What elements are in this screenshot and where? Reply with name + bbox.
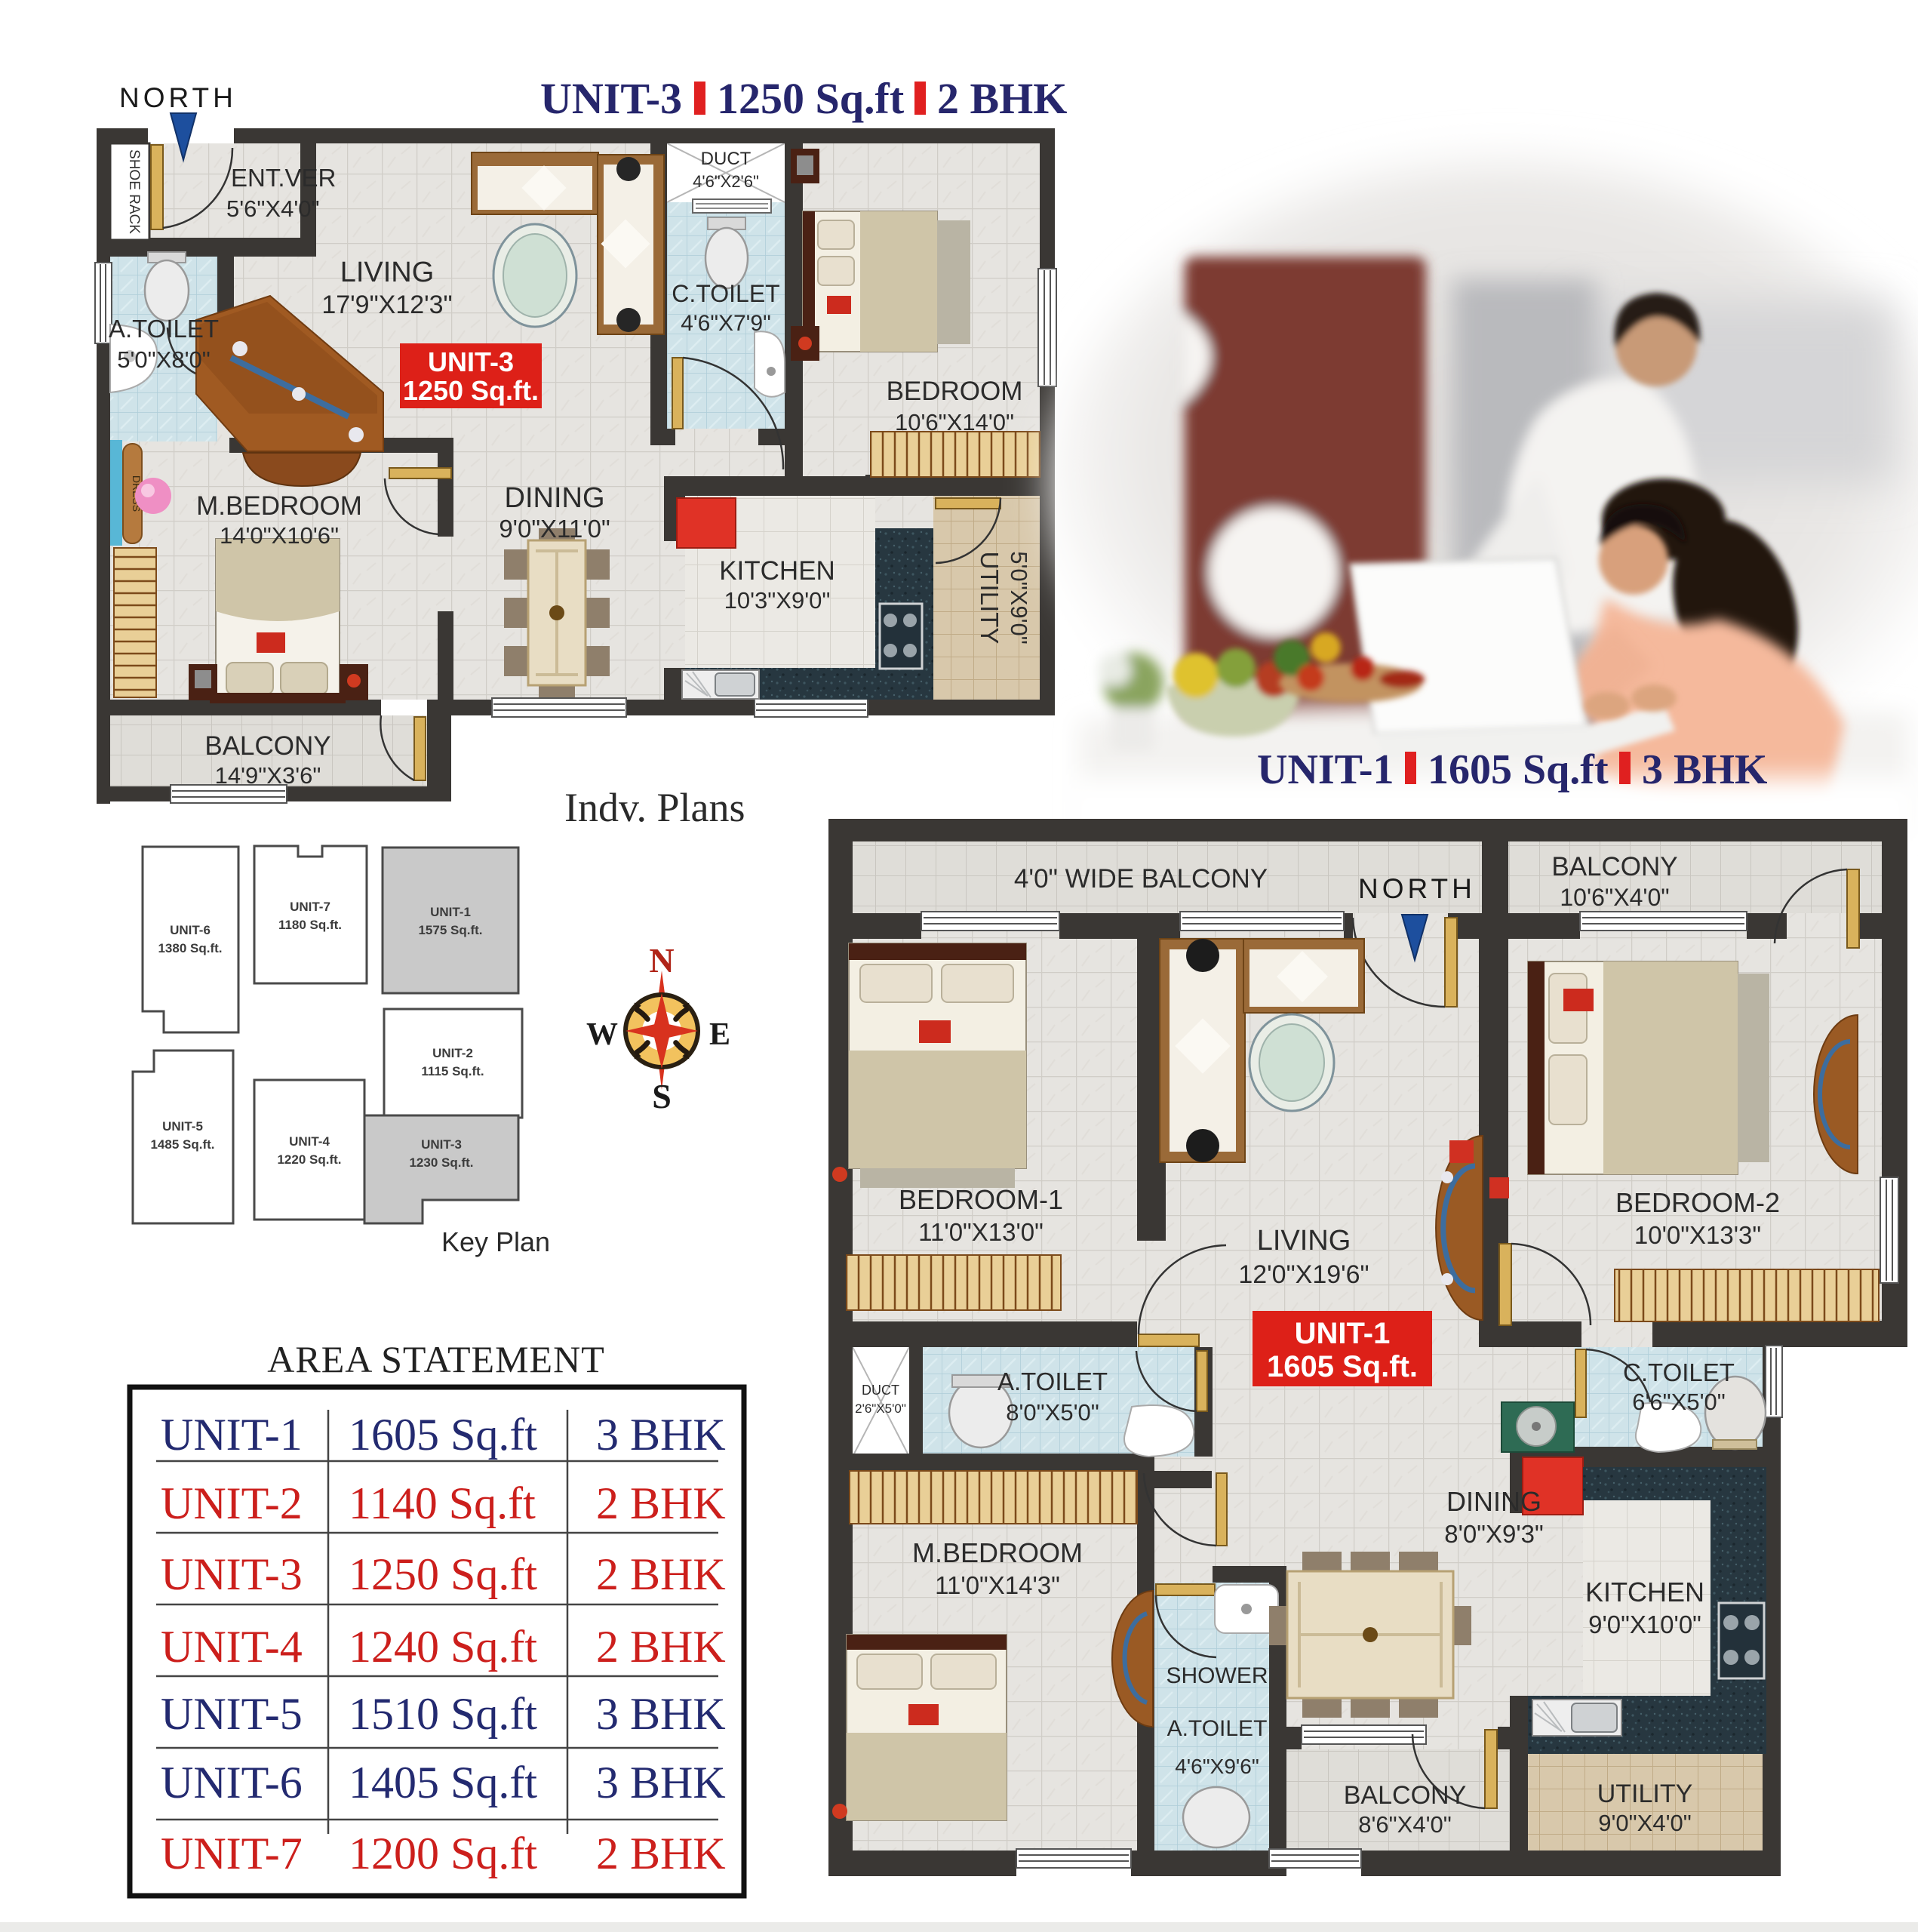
- svg-text:5'0"X9'0": 5'0"X9'0": [1006, 551, 1032, 645]
- svg-text:BEDROOM: BEDROOM: [887, 377, 1023, 406]
- svg-text:1605 Sq.ft.: 1605 Sq.ft.: [1267, 1350, 1418, 1383]
- svg-text:1605 Sq.ft: 1605 Sq.ft: [349, 1410, 537, 1460]
- svg-text:11'0"X13'0": 11'0"X13'0": [918, 1218, 1044, 1246]
- svg-text:14'0"X10'6": 14'0"X10'6": [220, 522, 339, 549]
- svg-text:UNIT-6: UNIT-6: [170, 923, 211, 937]
- svg-text:UNIT-2: UNIT-2: [161, 1478, 303, 1528]
- svg-text:14'9"X3'6": 14'9"X3'6": [215, 762, 321, 789]
- svg-text:4'6"X2'6": 4'6"X2'6": [693, 172, 759, 191]
- svg-text:5'6"X4'0": 5'6"X4'0": [226, 195, 320, 222]
- svg-text:BALCONY: BALCONY: [1344, 1781, 1467, 1810]
- svg-text:3 BHK: 3 BHK: [596, 1758, 726, 1807]
- svg-text:1250 Sq.ft: 1250 Sq.ft: [717, 74, 905, 123]
- svg-text:1250 Sq.ft: 1250 Sq.ft: [349, 1549, 537, 1599]
- svg-text:4'6"X9'6": 4'6"X9'6": [1175, 1755, 1259, 1778]
- svg-text:8'0"X9'3": 8'0"X9'3": [1444, 1520, 1543, 1548]
- svg-text:BEDROOM-2: BEDROOM-2: [1615, 1187, 1780, 1218]
- svg-text:BALCONY: BALCONY: [204, 731, 330, 761]
- svg-text:M.BEDROOM: M.BEDROOM: [912, 1537, 1083, 1568]
- svg-text:3 BHK: 3 BHK: [596, 1410, 726, 1460]
- svg-text:UNIT-5: UNIT-5: [161, 1689, 303, 1739]
- svg-text:3 BHK: 3 BHK: [596, 1689, 726, 1739]
- svg-text:C.TOILET: C.TOILET: [1623, 1358, 1735, 1386]
- svg-text:DUCT: DUCT: [701, 149, 752, 169]
- svg-text:12'0"X19'6": 12'0"X19'6": [1238, 1260, 1369, 1289]
- svg-text:A.TOILET: A.TOILET: [1167, 1716, 1268, 1741]
- svg-text:SHOE RACK: SHOE RACK: [126, 149, 142, 234]
- svg-text:1220 Sq.ft.: 1220 Sq.ft.: [277, 1152, 341, 1167]
- svg-text:UNIT-3: UNIT-3: [421, 1137, 462, 1152]
- svg-text:2 BHK: 2 BHK: [596, 1478, 726, 1528]
- svg-text:2 BHK: 2 BHK: [937, 74, 1067, 123]
- svg-text:E: E: [709, 1017, 730, 1052]
- svg-text:2'6"X5'0": 2'6"X5'0": [855, 1401, 906, 1416]
- svg-text:UNIT-1: UNIT-1: [1295, 1317, 1391, 1350]
- svg-text:1115 Sq.ft.: 1115 Sq.ft.: [421, 1064, 484, 1078]
- svg-text:UNIT-3: UNIT-3: [161, 1549, 303, 1599]
- svg-text:9'0"X4'0": 9'0"X4'0": [1598, 1810, 1692, 1836]
- svg-text:8'0"X5'0": 8'0"X5'0": [1006, 1399, 1099, 1426]
- svg-text:10'6"X4'0": 10'6"X4'0": [1560, 884, 1669, 911]
- svg-text:UTILITY: UTILITY: [1597, 1780, 1693, 1808]
- svg-text:17'9"X12'3": 17'9"X12'3": [321, 291, 452, 319]
- svg-text:A.TOILET: A.TOILET: [109, 315, 219, 343]
- svg-text:10'0"X13'3": 10'0"X13'3": [1634, 1221, 1761, 1249]
- svg-text:4'0" WIDE BALCONY: 4'0" WIDE BALCONY: [1014, 864, 1268, 894]
- svg-text:1485 Sq.ft.: 1485 Sq.ft.: [150, 1137, 214, 1152]
- svg-text:DUCT: DUCT: [862, 1383, 899, 1398]
- svg-text:UNIT-1: UNIT-1: [161, 1410, 303, 1460]
- svg-text:2 BHK: 2 BHK: [596, 1829, 726, 1878]
- svg-text:1405 Sq.ft: 1405 Sq.ft: [349, 1758, 537, 1807]
- svg-text:10'6"X14'0": 10'6"X14'0": [895, 409, 1014, 435]
- svg-text:M.BEDROOM: M.BEDROOM: [196, 491, 362, 521]
- svg-text:KITCHEN: KITCHEN: [719, 556, 835, 586]
- svg-text:KITCHEN: KITCHEN: [1585, 1577, 1704, 1607]
- svg-text:1380 Sq.ft.: 1380 Sq.ft.: [158, 941, 222, 955]
- svg-text:UNIT-2: UNIT-2: [432, 1046, 473, 1060]
- svg-text:UNIT-4: UNIT-4: [161, 1622, 303, 1672]
- svg-text:AREA STATEMENT: AREA STATEMENT: [267, 1338, 605, 1380]
- svg-text:LIVING: LIVING: [340, 257, 435, 288]
- svg-text:3 BHK: 3 BHK: [1642, 746, 1768, 793]
- svg-text:A.TOILET: A.TOILET: [997, 1367, 1108, 1395]
- svg-text:1200 Sq.ft: 1200 Sq.ft: [349, 1829, 537, 1878]
- svg-text:LIVING: LIVING: [1257, 1225, 1351, 1257]
- svg-text:UNIT-7: UNIT-7: [290, 900, 330, 914]
- svg-text:6'6"X5'0": 6'6"X5'0": [1632, 1389, 1726, 1415]
- svg-text:1250 Sq.ft.: 1250 Sq.ft.: [403, 375, 539, 406]
- svg-text:UNIT-1: UNIT-1: [430, 905, 471, 919]
- svg-text:N: N: [649, 941, 674, 980]
- svg-text:2 BHK: 2 BHK: [596, 1549, 726, 1599]
- svg-text:11'0"X14'3": 11'0"X14'3": [935, 1571, 1060, 1599]
- svg-text:8'6"X4'0": 8'6"X4'0": [1358, 1811, 1452, 1838]
- svg-text:C.TOILET: C.TOILET: [672, 280, 779, 307]
- svg-text:1230 Sq.ft.: 1230 Sq.ft.: [409, 1155, 473, 1170]
- svg-text:1240 Sq.ft: 1240 Sq.ft: [349, 1622, 537, 1672]
- svg-text:1575 Sq.ft.: 1575 Sq.ft.: [418, 923, 482, 937]
- svg-text:Key Plan: Key Plan: [441, 1226, 550, 1257]
- svg-text:BALCONY: BALCONY: [1551, 852, 1677, 881]
- svg-text:1140 Sq.ft: 1140 Sq.ft: [349, 1478, 536, 1528]
- svg-text:W: W: [586, 1017, 618, 1052]
- svg-text:UNIT-5: UNIT-5: [162, 1119, 203, 1134]
- svg-text:S: S: [652, 1077, 672, 1115]
- svg-text:BEDROOM-1: BEDROOM-1: [899, 1184, 1063, 1215]
- svg-text:DINING: DINING: [1446, 1486, 1541, 1517]
- svg-text:UNIT-6: UNIT-6: [161, 1758, 303, 1807]
- svg-text:1605 Sq.ft: 1605 Sq.ft: [1428, 746, 1609, 793]
- svg-text:UNIT-7: UNIT-7: [161, 1829, 303, 1878]
- svg-text:UNIT-3: UNIT-3: [428, 346, 514, 377]
- svg-text:UTILITY: UTILITY: [976, 552, 1004, 645]
- svg-text:2 BHK: 2 BHK: [596, 1622, 726, 1672]
- svg-text:1510 Sq.ft: 1510 Sq.ft: [349, 1689, 537, 1739]
- svg-text:9'0"X11'0": 9'0"X11'0": [499, 515, 610, 543]
- svg-text:4'6"X7'9": 4'6"X7'9": [681, 311, 771, 336]
- svg-text:NORTH: NORTH: [119, 82, 237, 113]
- svg-text:9'0"X10'0": 9'0"X10'0": [1588, 1611, 1701, 1638]
- svg-text:UNIT-4: UNIT-4: [289, 1134, 330, 1149]
- svg-text:10'3"X9'0": 10'3"X9'0": [724, 587, 831, 614]
- svg-text:1180 Sq.ft.: 1180 Sq.ft.: [278, 918, 342, 932]
- svg-text:5'0"X8'0": 5'0"X8'0": [117, 346, 211, 373]
- svg-text:DINING: DINING: [505, 482, 605, 514]
- svg-text:SHOWER: SHOWER: [1166, 1663, 1268, 1688]
- svg-text:UNIT-3: UNIT-3: [540, 74, 682, 123]
- svg-text:NORTH: NORTH: [1358, 873, 1476, 904]
- svg-text:Indv. Plans: Indv. Plans: [564, 785, 745, 830]
- svg-text:UNIT-1: UNIT-1: [1257, 746, 1394, 793]
- svg-text:ENT.VER: ENT.VER: [231, 164, 336, 192]
